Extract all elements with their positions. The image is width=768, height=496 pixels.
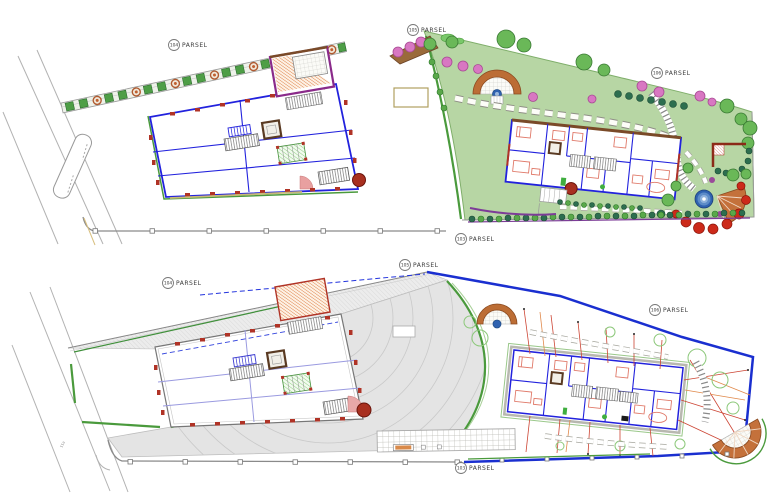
spiral-stair <box>357 403 371 417</box>
parcel-word: PARSEL <box>176 280 202 287</box>
parcel-label-105-top: 105 PARSEL <box>408 25 447 36</box>
top-plan-landscape: 104 PARSEL 105 PARSEL 106 PARSEL 103 PAR… <box>3 25 757 246</box>
parcel-number: 103 <box>457 466 466 472</box>
parcel-label-106-bottom: 106 PARSEL <box>650 305 689 316</box>
parcel-word: PARSEL <box>469 465 495 472</box>
parcel-word: PARSEL <box>421 27 447 34</box>
elevator-shaft <box>262 120 281 138</box>
boundary-fence-top-plan <box>83 192 446 245</box>
parcel-number: 104 <box>170 43 179 49</box>
parcel-number: 106 <box>651 308 660 314</box>
parcel-label-103-top: 103 PARSEL <box>456 234 495 245</box>
parcel-label-103-bottom: 103 PARSEL <box>456 463 495 474</box>
road-label: 11a <box>59 441 66 449</box>
elevator-shaft <box>267 350 286 368</box>
stair <box>571 384 592 398</box>
stair <box>569 154 590 168</box>
site-plan-canvas: 104 PARSEL 105 PARSEL 106 PARSEL 103 PAR… <box>0 0 768 496</box>
patio-fountain-dot <box>493 320 501 328</box>
stair <box>595 387 618 401</box>
blank-label-box <box>393 326 415 337</box>
parcel-number: 105 <box>401 263 410 269</box>
bench <box>393 444 413 450</box>
parcel-number: 104 <box>164 281 173 287</box>
parcel-number: 106 <box>653 71 662 77</box>
road-left-top-plan <box>3 50 122 244</box>
parcel-label-104-top: 104 PARSEL <box>169 40 208 51</box>
parcel-label-104-bottom: 104 PARSEL <box>163 278 202 289</box>
road-left-bottom-plan: 11a <box>12 287 128 492</box>
site-plan-sheet: 104 PARSEL 105 PARSEL 106 PARSEL 103 PAR… <box>0 0 768 496</box>
elevator-shaft <box>551 372 563 384</box>
semicircular-patio-bottom <box>477 304 517 328</box>
parcel-label-106-top: 106 PARSEL <box>652 68 691 79</box>
elevator-shaft <box>549 142 561 154</box>
parcel-word: PARSEL <box>665 70 691 77</box>
parcel-number: 105 <box>409 28 418 34</box>
corner-fan-patio <box>709 417 768 475</box>
parcel-word: PARSEL <box>469 236 495 243</box>
blank-label-box <box>394 88 428 107</box>
parcel-number: 103 <box>457 237 466 243</box>
spiral-stair <box>353 174 366 187</box>
parcel-word: PARSEL <box>663 307 689 314</box>
left-building-top-plan <box>148 84 366 199</box>
stair <box>593 157 616 171</box>
parcel-word: PARSEL <box>182 42 208 49</box>
parcel-word: PARSEL <box>413 262 439 269</box>
stair <box>619 391 638 403</box>
paver-strip <box>377 429 515 452</box>
parcel-label-105-bottom: 105 PARSEL <box>400 260 439 271</box>
